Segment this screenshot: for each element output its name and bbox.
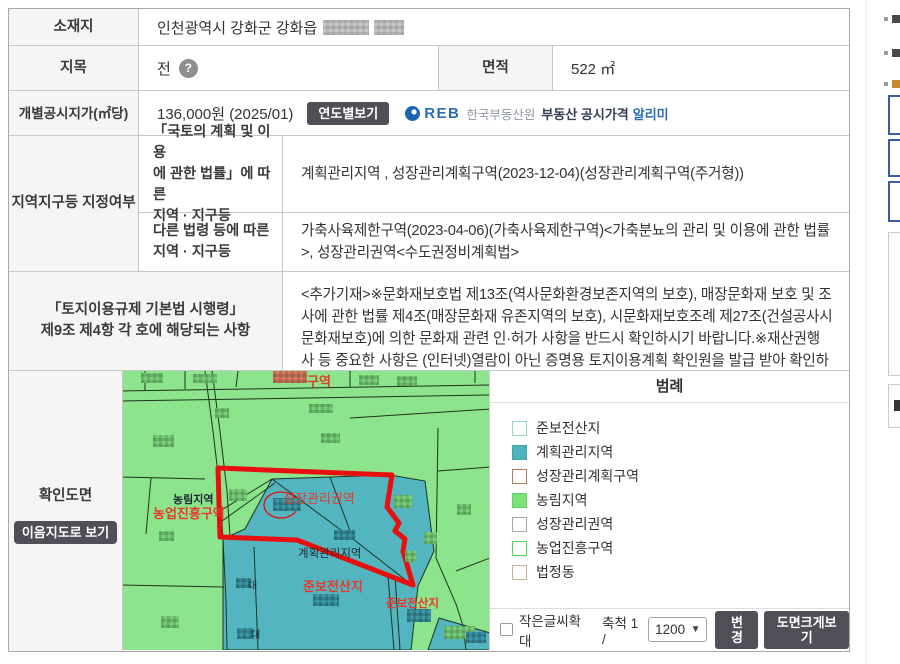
zones-other-label: 다른 법령 등에 따른 지역 · 지구등 xyxy=(139,213,283,272)
sidebar-fragment-bullet xyxy=(884,82,888,86)
regulation-label: 「토지이용규제 기본법 시행령」 제9조 제4항 각 호에 해당되는 사항 xyxy=(9,272,283,371)
map-blur-block xyxy=(229,489,247,501)
legend-item: 준보전산지 xyxy=(512,416,849,440)
sidebar-fragment-bullet xyxy=(884,51,888,55)
map-blur-block xyxy=(193,374,217,383)
area-value: 522 ㎡ xyxy=(571,58,615,79)
map-blur-block xyxy=(215,408,229,418)
zones-other-value: 가축사육제한구역(2023-04-06)(가축사육제한구역)<가축분뇨의 관리 … xyxy=(283,213,849,272)
reb-service-suffix: 알리미 xyxy=(633,104,669,123)
sidebar-fragment-bullet xyxy=(884,17,888,21)
scale-value: 1200 xyxy=(655,622,685,637)
page-divider xyxy=(866,0,867,664)
map-blur-block xyxy=(405,551,416,562)
legend-swatch xyxy=(512,565,527,580)
map-blur-block xyxy=(237,628,254,639)
map-blur-block xyxy=(273,498,301,511)
map-blur-block xyxy=(313,594,339,606)
zones-national-label: 「국토의 계획 및 이용 에 관한 법률」에 따른 지역 · 지구등 xyxy=(139,136,283,213)
legend-panel: 범례 준보전산지 계획관리지역 성장관리계획구역 농림지역 성장관리권역 농업진… xyxy=(490,371,849,650)
scale-select[interactable]: 1200 ▼ xyxy=(648,617,707,642)
sidebar-fragment-banner[interactable] xyxy=(888,139,900,177)
legend-item: 계획관리지역 xyxy=(512,440,849,464)
location-blur-2 xyxy=(374,20,404,35)
map-blur-block xyxy=(161,616,179,628)
sidebar-fragment-banner[interactable] xyxy=(888,181,900,222)
legend-items: 준보전산지 계획관리지역 성장관리계획구역 농림지역 성장관리권역 농업진흥구역… xyxy=(490,403,849,584)
land-info-table: 소재지 인천광역시 강화군 강화읍 지목 전 ? 면적 522 ㎡ 개별공시지가… xyxy=(8,8,850,652)
sidebar-fragment-item[interactable] xyxy=(892,49,900,57)
drawing-label-cell: 확인도면 이음지도로 보기 xyxy=(9,371,123,651)
sidebar-fragment-box[interactable] xyxy=(888,384,900,428)
map-blur-block xyxy=(334,530,355,540)
legend-item: 농림지역 xyxy=(512,488,849,512)
map-blur-block xyxy=(457,504,471,515)
map-blur-block xyxy=(359,375,379,385)
chevron-down-icon: ▼ xyxy=(691,624,701,635)
legend-item: 농업진흥구역 xyxy=(512,536,849,560)
reb-service-text: 부동산 공시가격 xyxy=(541,104,628,123)
legend-swatch xyxy=(512,445,527,460)
land-use-plan-page: 소재지 인천광역시 강화군 강화읍 지목 전 ? 면적 522 ㎡ 개별공시지가… xyxy=(0,0,900,664)
location-value: 인천광역시 강화군 강화읍 xyxy=(157,17,317,38)
category-label: 지목 xyxy=(9,46,139,91)
price-label: 개별공시지가(㎡당) xyxy=(9,91,139,136)
legend-item: 성장관리권역 xyxy=(512,512,849,536)
yearly-view-button[interactable]: 연도별보기 xyxy=(307,102,389,125)
reb-logo-text: REB xyxy=(424,105,460,122)
sidebar-fragment-box[interactable] xyxy=(888,232,900,376)
reb-price-link[interactable]: REB 한국부동산원 부동산 공시가격 알리미 xyxy=(405,104,668,123)
map-control-bar: 작은글씨확대 축척 1 / 1200 ▼ 변경 도면크게보기 xyxy=(490,608,849,650)
map-blur-block xyxy=(321,433,340,443)
map-blur-block xyxy=(394,495,412,508)
price-value: 136,000원 (2025/01) xyxy=(157,103,293,124)
drawing-content-cell: 구역 농림지역 농업진흥구역 성장관리권역 계획관리지역 준보전산지 준보전산지… xyxy=(123,371,849,651)
sidebar-fragment-item[interactable] xyxy=(892,15,900,23)
zones-label: 지역지구등 지정여부 xyxy=(9,136,139,272)
legend-swatch xyxy=(512,421,527,436)
scale-label: 축척 1 / xyxy=(602,612,640,647)
map-blur-block xyxy=(273,371,307,383)
legend-swatch xyxy=(512,493,527,508)
legend-swatch xyxy=(512,517,527,532)
eum-map-button[interactable]: 이음지도로 보기 xyxy=(14,521,117,544)
small-text-label: 작은글씨확대 xyxy=(519,610,584,650)
map-blur-block xyxy=(407,609,431,622)
legend-item: 법정동 xyxy=(512,560,849,584)
area-value-cell: 522 ㎡ xyxy=(553,46,849,91)
cadastral-map xyxy=(123,371,490,650)
map-blur-block xyxy=(397,376,417,386)
question-icon[interactable]: ? xyxy=(179,59,198,78)
sidebar-fragment-banner[interactable] xyxy=(888,95,900,135)
area-label: 면적 xyxy=(439,46,553,91)
small-text-checkbox[interactable] xyxy=(500,623,513,636)
change-scale-button[interactable]: 변경 xyxy=(715,611,758,649)
category-value: 전 xyxy=(157,58,171,79)
legend-title: 범례 xyxy=(490,371,849,403)
location-blur-1 xyxy=(323,20,369,35)
legend-item: 성장관리계획구역 xyxy=(512,464,849,488)
drawing-label: 확인도면 xyxy=(14,486,117,507)
map-canvas[interactable]: 구역 농림지역 농업진흥구역 성장관리권역 계획관리지역 준보전산지 준보전산지… xyxy=(123,371,490,650)
sidebar-fragment-item[interactable] xyxy=(892,80,900,88)
zones-national-value: 계획관리지역 , 성장관리계획구역(2023-12-04)(성장관리계획구역(주… xyxy=(283,136,849,213)
map-blur-block xyxy=(466,632,486,643)
map-blur-block xyxy=(153,435,174,447)
legend-swatch xyxy=(512,469,527,484)
regulation-value: <추가기재>※문화재보호법 제13조(역사문화환경보존지역의 보호), 매장문화… xyxy=(283,272,849,371)
legend-swatch xyxy=(512,541,527,556)
location-value-cell: 인천광역시 강화군 강화읍 xyxy=(139,9,849,46)
enlarge-drawing-button[interactable]: 도면크게보기 xyxy=(764,611,849,649)
reb-logo-icon xyxy=(405,106,420,121)
map-blur-block xyxy=(141,373,163,383)
map-blur-block xyxy=(159,531,174,541)
map-blur-block xyxy=(424,532,437,544)
map-blur-block xyxy=(309,404,333,413)
map-blur-block xyxy=(236,578,251,588)
category-value-cell: 전 ? xyxy=(139,46,439,91)
reb-org-text: 한국부동산원 xyxy=(466,104,535,123)
location-label: 소재지 xyxy=(9,9,139,46)
